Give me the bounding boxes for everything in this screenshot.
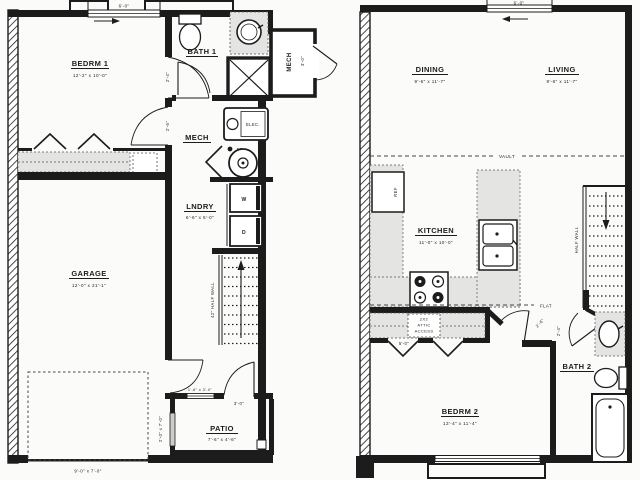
elec-label: ELEC.: [246, 122, 260, 127]
door-arc-bath1: [178, 62, 210, 93]
kitchen-dims: 11'-0" x 10'-0": [419, 240, 453, 245]
sink-drain-dot: [495, 254, 498, 257]
attic-access-line1: 2X2: [420, 317, 429, 322]
wall: [418, 338, 433, 343]
wall: [463, 338, 490, 343]
wall: [165, 10, 172, 57]
floor1-plan: 6'-0" BEDRM 1 12'-2" x 10'-0" 2'-4" 2'-6…: [8, 1, 337, 474]
stair-treads: [589, 196, 625, 306]
wall: [258, 96, 266, 463]
wall: [360, 455, 435, 463]
refrigerator: [372, 172, 404, 212]
floorplan-sheet: 6'-0" BEDRM 1 12'-2" x 10'-0" 2'-4" 2'-6…: [0, 0, 640, 480]
stair-up-arrow-head: [238, 260, 245, 270]
wall: [552, 5, 632, 12]
wall: [522, 340, 552, 347]
garage-dims: 12'-0" x 21'-1": [72, 283, 106, 288]
wall: [18, 148, 32, 151]
living-dims: 9'-6" x 11'-7": [547, 79, 578, 84]
half-wall-label: 42" HALF WALL: [210, 282, 215, 318]
mech-label: MECH: [185, 133, 209, 142]
washer-back-strip: [256, 186, 260, 210]
wall: [212, 95, 273, 101]
door-leaf-bedrm2: [524, 311, 529, 343]
wall: [212, 248, 266, 254]
garage-door-dim: 9'-0" x 7'-0": [74, 469, 101, 474]
patio-wall: [269, 399, 274, 455]
hall-door-dim: 2'-6": [165, 121, 170, 131]
attic-access-dim: 5'-0": [399, 341, 409, 346]
wall-stub: [583, 290, 589, 310]
living-label: LIVING: [548, 65, 575, 74]
mech-upper-door-dim: 3'-0": [300, 56, 305, 66]
dining-label: DINING: [416, 65, 445, 74]
lndry-dims: 6'-6" x 5'-0": [186, 215, 214, 220]
kitchen-sink: [479, 220, 517, 270]
tub-drain-dot: [608, 405, 611, 408]
floor2-plan: 6'-0" DINING 9'-6" x 11'-7" LIVING 9'-6"…: [356, 0, 632, 478]
stair-down-arrow-head: [603, 220, 610, 230]
patio-door-dim: 3'-0": [234, 401, 244, 406]
bedrm2-door-dim: 2'-6": [535, 317, 546, 328]
entry-arrow-head: [502, 16, 510, 22]
mech-door-ajar: [206, 146, 222, 178]
wall: [165, 98, 172, 107]
lower-patio-outline: [428, 464, 545, 478]
wall: [550, 341, 556, 463]
stove-burner-dot: [419, 280, 422, 283]
party-wall-hatched: [360, 12, 370, 458]
sink-basin: [599, 321, 619, 347]
wall: [214, 393, 224, 399]
toilet-tank: [179, 14, 201, 24]
wall: [165, 393, 187, 399]
patio-wall: [170, 450, 274, 455]
patio-dims: 7'-6" x 4'-6": [208, 437, 236, 442]
window-patio-side: [170, 413, 175, 446]
wall: [172, 95, 176, 101]
bedrm1-dims: 12'-2" x 10'-0": [73, 73, 107, 78]
entry-arrow-head: [112, 18, 120, 24]
stove-burner-dot: [419, 296, 422, 299]
dryer-label: D: [242, 230, 246, 236]
wall: [254, 393, 273, 399]
stove-burner-dot: [437, 280, 440, 283]
washer-label: W: [241, 197, 246, 203]
door-arc-hall: [131, 107, 168, 145]
dining-dims: 9'-6" x 11'-7": [415, 79, 446, 84]
attic-access-line2: ATTIC: [417, 323, 430, 328]
party-wall-hatched: [8, 10, 18, 463]
floor-drain-icon: [228, 147, 233, 152]
dryer-back-strip: [256, 218, 260, 244]
flat-label: FLAT: [540, 304, 552, 309]
door-arc-bedrm2: [500, 311, 529, 322]
sink-drain-dot: [495, 232, 498, 235]
garage-label: GARAGE: [71, 269, 106, 278]
window-dim-label: 6'-0": [119, 4, 130, 9]
mech-closet-exterior: [271, 30, 315, 96]
bedrm2-label: BEDRM 2: [442, 407, 479, 416]
bath2-label: BATH 2: [563, 362, 592, 371]
bifold-door-mark: [433, 341, 463, 356]
patio-label: PATIO: [210, 424, 234, 433]
bath1-label: BATH 1: [188, 47, 217, 56]
mech-upper-label: MECH: [287, 52, 293, 71]
attic-access-line3: ACCESS: [415, 329, 434, 334]
toilet-tank: [619, 367, 627, 389]
bath2-door-dim: 2'-4": [556, 326, 561, 336]
bifold-door-mark: [78, 134, 110, 149]
bifold-door-mark: [34, 134, 66, 149]
wall: [148, 455, 273, 463]
floorplan-drawing: 6'-0" BEDRM 1 12'-2" x 10'-0" 2'-4" 2'-6…: [0, 0, 640, 480]
door-arc-patio: [224, 362, 254, 395]
garage-door-outline: [28, 372, 148, 460]
bedrm1-door-dim: 2'-4": [165, 72, 170, 82]
patio-post: [257, 440, 266, 449]
half-wall-label: HALF WALL: [574, 226, 579, 253]
hall-window-dim: 1'-6" x 3'-0": [188, 388, 213, 392]
window-dim-label: 6'-0": [514, 1, 525, 6]
wall: [370, 307, 490, 313]
wall: [370, 338, 388, 343]
wall: [210, 177, 273, 182]
wall: [8, 10, 88, 17]
lndry-label: LNDRY: [186, 202, 214, 211]
wall: [18, 172, 170, 180]
patio-wall: [170, 399, 175, 413]
toilet-bowl: [595, 369, 618, 388]
wall: [8, 455, 28, 463]
bedrm2-dims: 13'-4" x 11'-4": [443, 421, 477, 426]
stove-burner-dot: [437, 296, 440, 299]
wall: [360, 5, 487, 12]
wall: [113, 148, 165, 151]
water-heater-dot: [242, 162, 245, 165]
ref-label: REF: [393, 187, 398, 197]
door-arc-bedrm1: [168, 57, 209, 98]
vault-label: VAULT: [499, 154, 515, 159]
door-arc-bath2: [569, 313, 578, 346]
side-window-dim: 2'-0" x 7'-0": [158, 416, 163, 442]
kitchen-label: KITCHEN: [418, 226, 454, 235]
bedrm1-label: BEDRM 1: [72, 59, 109, 68]
